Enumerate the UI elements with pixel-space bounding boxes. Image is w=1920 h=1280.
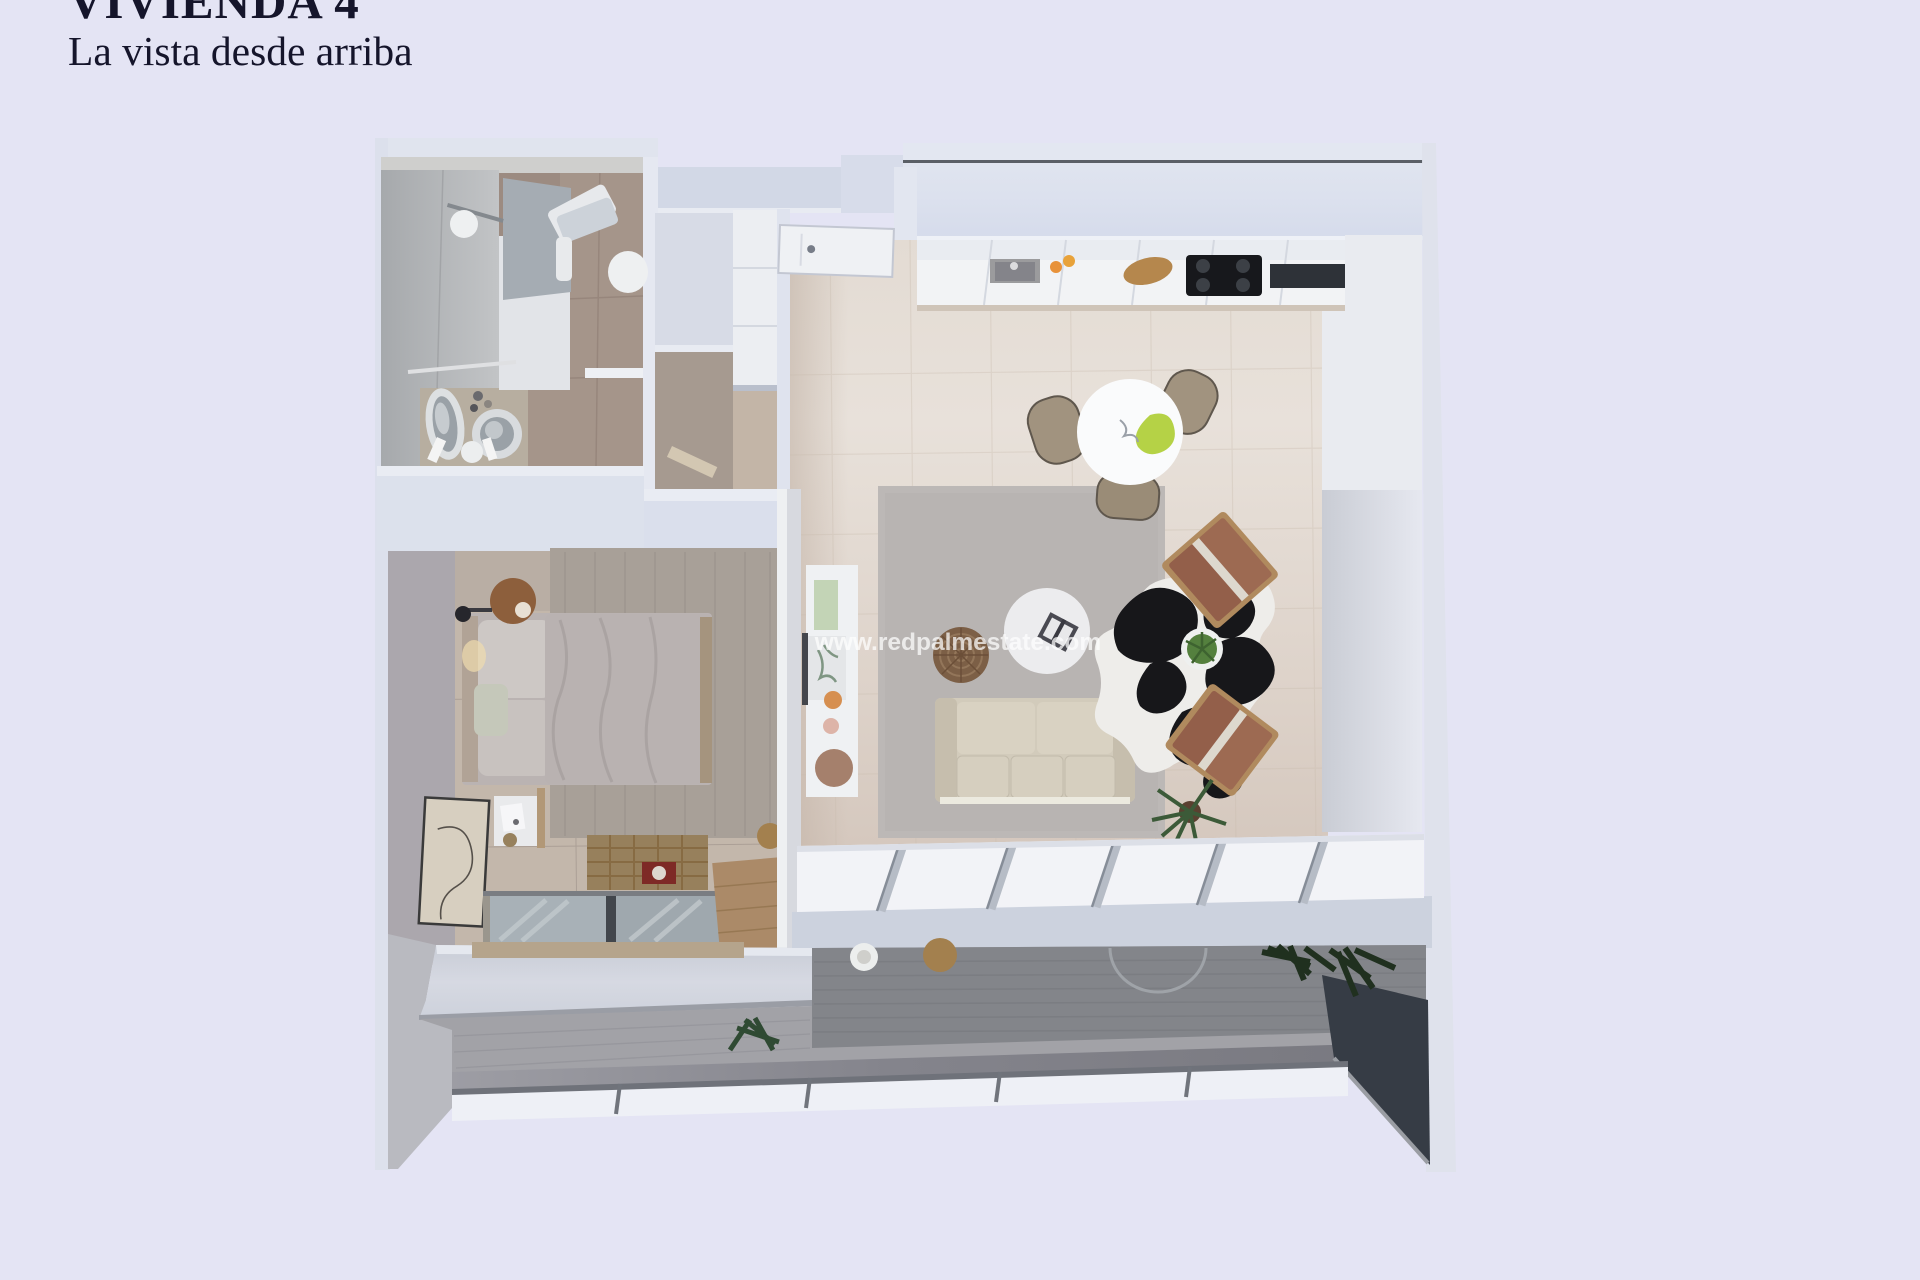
svg-text:www.redpalmestate.com: www.redpalmestate.com — [814, 629, 1101, 656]
svg-text:La vista desde arriba: La vista desde arriba — [68, 28, 413, 74]
svg-text:VIVIENDA 4: VIVIENDA 4 — [68, 0, 360, 29]
